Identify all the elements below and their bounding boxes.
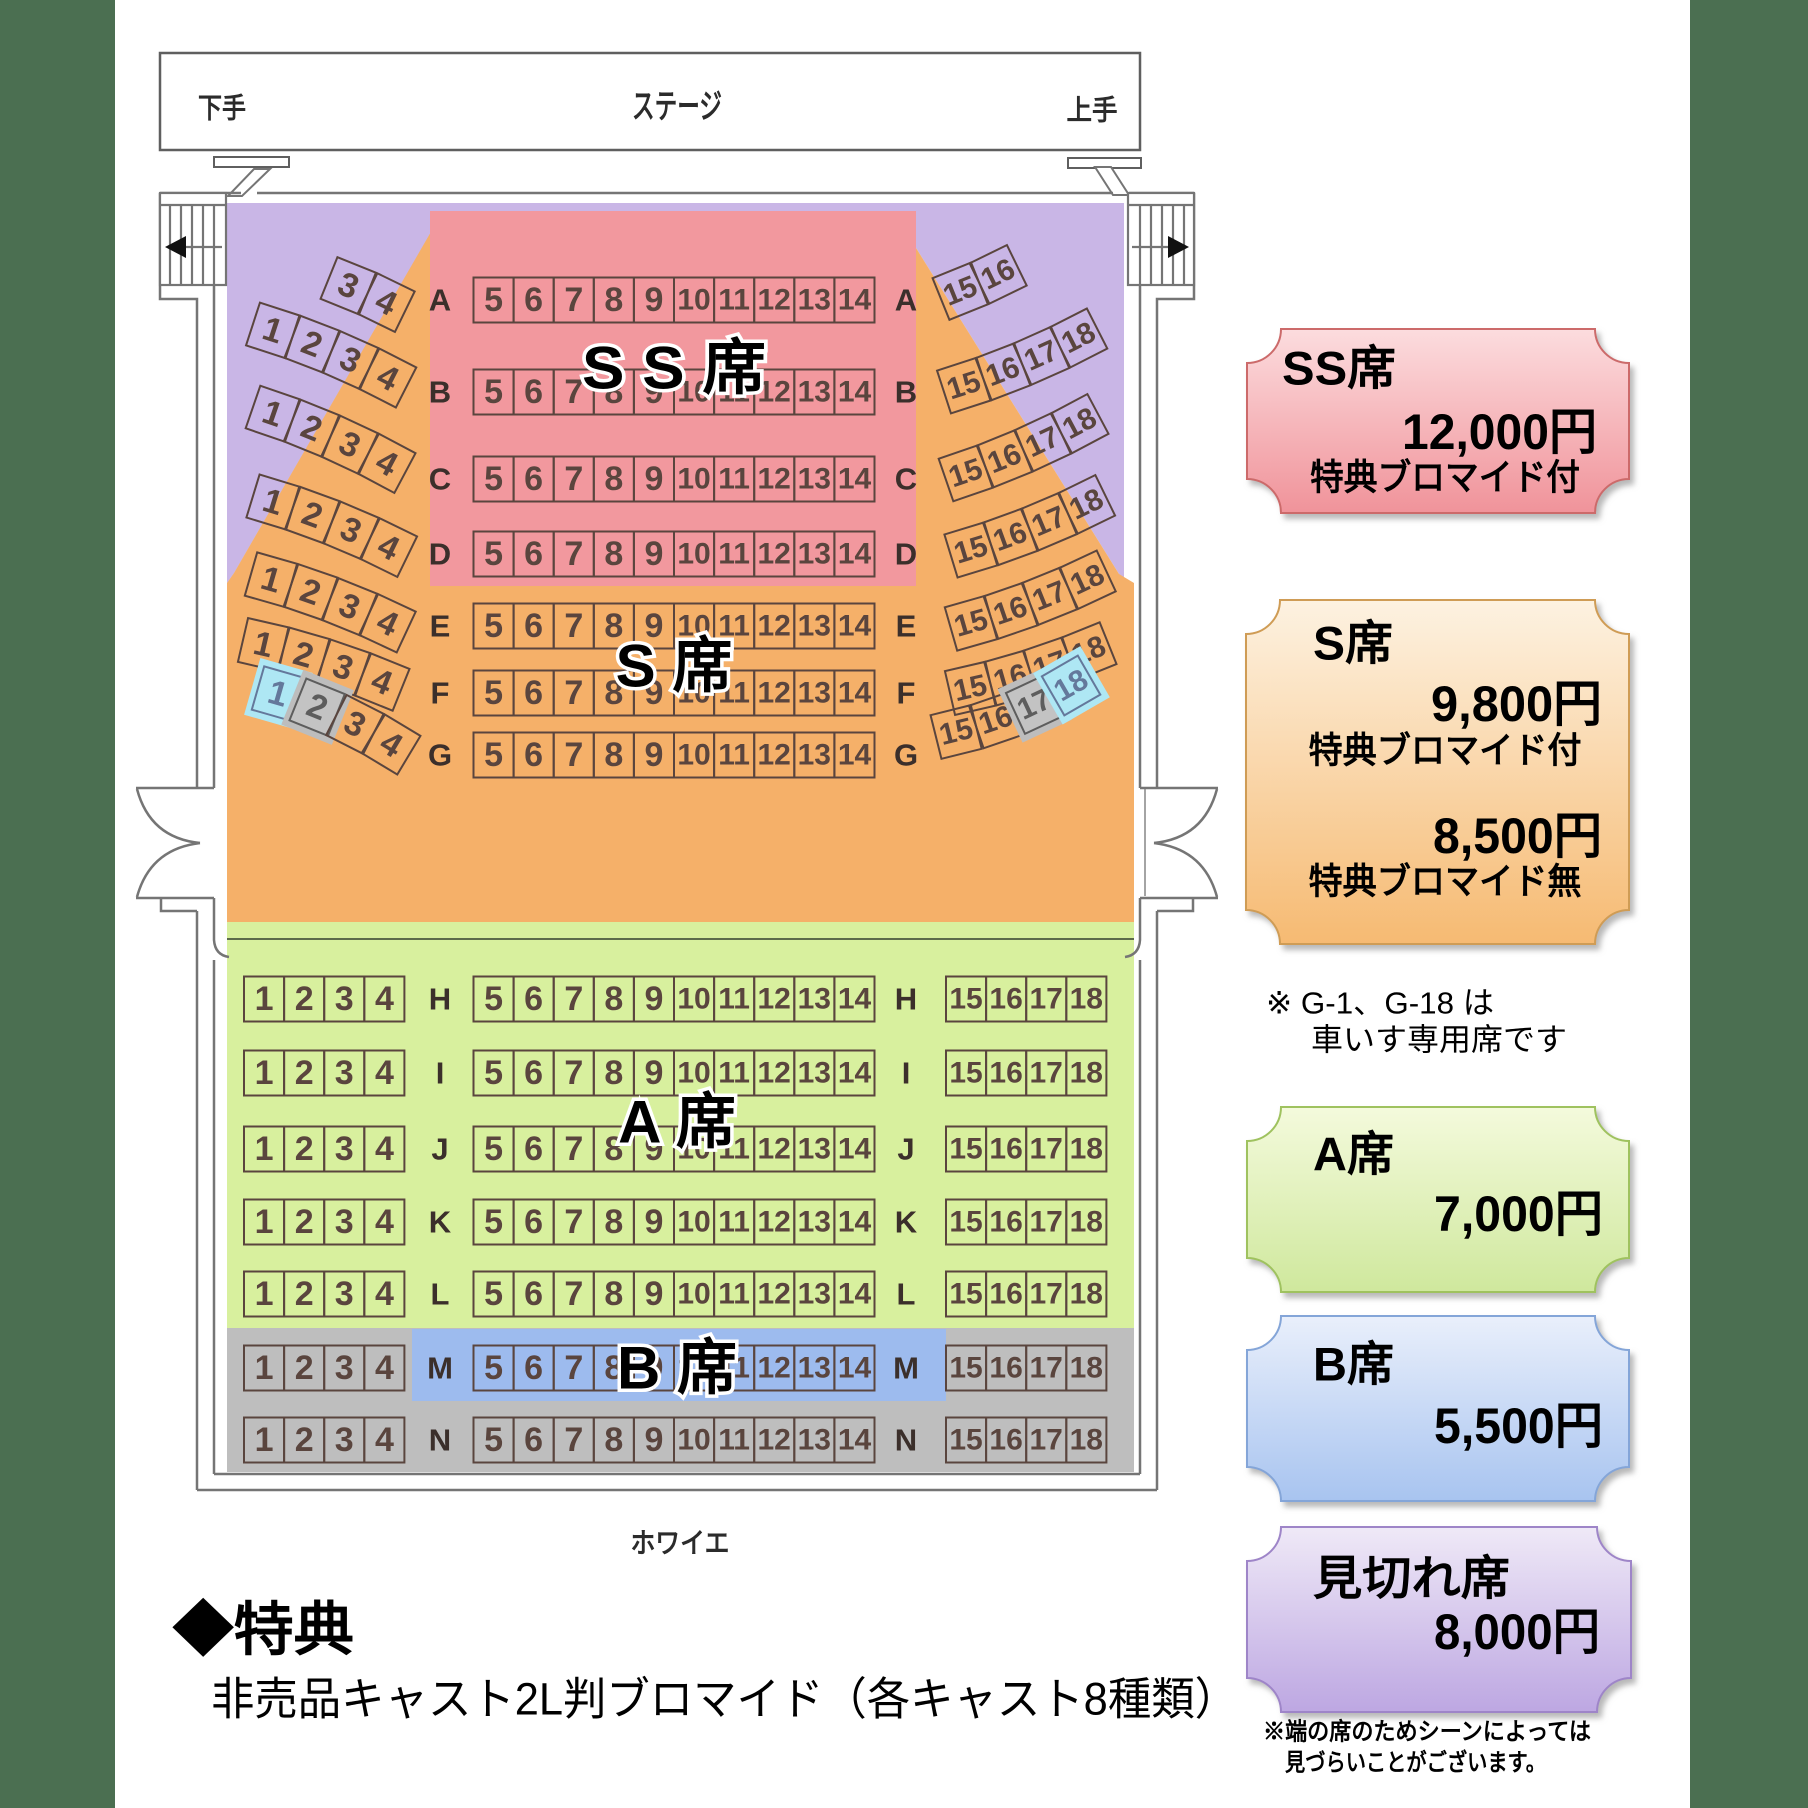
svg-text:M: M (427, 1351, 453, 1386)
svg-text:7: 7 (564, 980, 583, 1018)
svg-text:13: 13 (798, 538, 831, 571)
svg-text:1: 1 (255, 1130, 274, 1168)
svg-text:9: 9 (644, 1275, 663, 1313)
svg-text:10: 10 (677, 538, 710, 571)
svg-text:B: B (895, 375, 917, 410)
svg-text:F: F (897, 676, 916, 711)
svg-text:11: 11 (718, 983, 750, 1016)
svg-text:18: 18 (1070, 1424, 1103, 1457)
svg-text:7: 7 (564, 607, 583, 645)
svg-text:14: 14 (838, 1278, 872, 1311)
svg-text:3: 3 (335, 1203, 354, 1241)
svg-text:5,500円: 5,500円 (1434, 1398, 1603, 1454)
svg-text:3: 3 (335, 1054, 354, 1092)
svg-text:5: 5 (484, 674, 503, 712)
svg-text:8: 8 (604, 281, 623, 319)
svg-text:7: 7 (564, 1349, 583, 1387)
svg-text:9: 9 (644, 535, 663, 573)
svg-text:11: 11 (718, 1057, 750, 1090)
svg-text:8: 8 (604, 1203, 623, 1241)
svg-text:15: 15 (949, 1352, 982, 1385)
svg-text:15: 15 (949, 1206, 982, 1239)
svg-text:13: 13 (798, 677, 831, 710)
svg-text:6: 6 (524, 460, 543, 498)
svg-text:12: 12 (758, 1352, 791, 1385)
svg-text:1: 1 (255, 1349, 274, 1387)
svg-text:8: 8 (604, 1275, 623, 1313)
svg-text:11: 11 (718, 538, 750, 571)
svg-text:S S 席: S S 席 (582, 335, 766, 402)
svg-text:12: 12 (758, 1133, 791, 1166)
svg-text:6: 6 (524, 607, 543, 645)
svg-text:18: 18 (1070, 1206, 1103, 1239)
svg-text:B 席: B 席 (617, 1335, 737, 1402)
svg-text:6: 6 (524, 1349, 543, 1387)
svg-text:1: 1 (255, 980, 274, 1018)
svg-text:10: 10 (677, 463, 710, 496)
svg-text:非売品キャスト2L判ブロマイド（各キャスト8種類）: 非売品キャスト2L判ブロマイド（各キャスト8種類） (211, 1674, 1238, 1725)
svg-text:8: 8 (604, 460, 623, 498)
svg-text:16: 16 (989, 1424, 1022, 1457)
svg-text:8,500円: 8,500円 (1433, 808, 1602, 864)
svg-text:6: 6 (524, 674, 543, 712)
svg-text:見切れ席: 見切れ席 (1313, 1552, 1510, 1605)
svg-text:17: 17 (1030, 983, 1063, 1016)
svg-text:6: 6 (524, 281, 543, 319)
svg-text:12: 12 (758, 463, 791, 496)
svg-text:5: 5 (484, 535, 503, 573)
svg-text:14: 14 (838, 1352, 872, 1385)
svg-text:9: 9 (644, 281, 663, 319)
svg-text:9: 9 (644, 1421, 663, 1459)
svg-text:14: 14 (838, 983, 872, 1016)
svg-text:9: 9 (644, 980, 663, 1018)
svg-text:下手: 下手 (198, 93, 246, 124)
svg-text:7: 7 (564, 736, 583, 774)
svg-text:16: 16 (989, 1206, 1022, 1239)
svg-text:14: 14 (838, 284, 872, 317)
svg-text:14: 14 (838, 1057, 872, 1090)
svg-text:14: 14 (838, 739, 872, 772)
svg-text:H: H (429, 982, 451, 1017)
svg-text:2: 2 (295, 980, 314, 1018)
svg-text:1: 1 (255, 1203, 274, 1241)
svg-text:16: 16 (989, 1057, 1022, 1090)
svg-text:11: 11 (718, 1206, 750, 1239)
svg-text:K: K (429, 1205, 452, 1240)
svg-text:8,000円: 8,000円 (1434, 1604, 1600, 1660)
svg-text:5: 5 (484, 1130, 503, 1168)
svg-text:※ G-1、G-18 は: ※ G-1、G-18 は (1266, 986, 1494, 1021)
svg-text:14: 14 (838, 376, 872, 409)
svg-text:5: 5 (484, 1054, 503, 1092)
svg-text:12: 12 (758, 538, 791, 571)
svg-text:13: 13 (798, 610, 831, 643)
svg-text:14: 14 (838, 1206, 872, 1239)
svg-text:S 席: S 席 (616, 633, 733, 700)
svg-text:F: F (431, 676, 450, 711)
svg-text:4: 4 (375, 1421, 394, 1459)
svg-text:16: 16 (989, 1133, 1022, 1166)
svg-text:11: 11 (718, 739, 750, 772)
svg-text:12: 12 (758, 677, 791, 710)
svg-text:7: 7 (564, 1203, 583, 1241)
svg-text:7: 7 (564, 1421, 583, 1459)
svg-text:N: N (895, 1423, 917, 1458)
svg-text:H: H (895, 982, 917, 1017)
svg-text:10: 10 (677, 983, 710, 1016)
svg-text:9: 9 (644, 1054, 663, 1092)
svg-text:7: 7 (564, 1130, 583, 1168)
svg-text:17: 17 (1030, 1352, 1063, 1385)
svg-text:5: 5 (484, 460, 503, 498)
svg-text:4: 4 (375, 1349, 394, 1387)
svg-text:8: 8 (604, 736, 623, 774)
svg-text:13: 13 (798, 463, 831, 496)
svg-text:17: 17 (1030, 1057, 1063, 1090)
svg-text:5: 5 (484, 607, 503, 645)
svg-text:18: 18 (1070, 983, 1103, 1016)
svg-text:A 席: A 席 (618, 1089, 736, 1156)
svg-text:5: 5 (484, 736, 503, 774)
svg-text:9: 9 (644, 460, 663, 498)
svg-text:13: 13 (798, 983, 831, 1016)
svg-text:6: 6 (524, 1130, 543, 1168)
svg-text:2: 2 (295, 1130, 314, 1168)
svg-text:12: 12 (758, 1057, 791, 1090)
svg-text:18: 18 (1070, 1133, 1103, 1166)
svg-text:ステージ: ステージ (632, 88, 722, 126)
svg-text:※端の席のためシーンによっては: ※端の席のためシーンによっては (1263, 1718, 1591, 1746)
svg-text:7: 7 (564, 674, 583, 712)
svg-text:5: 5 (484, 1275, 503, 1313)
svg-text:4: 4 (375, 980, 394, 1018)
svg-text:5: 5 (484, 1349, 503, 1387)
svg-text:1: 1 (255, 1421, 274, 1459)
svg-text:11: 11 (718, 463, 750, 496)
svg-text:3: 3 (335, 1130, 354, 1168)
svg-text:◆特典: ◆特典 (172, 1598, 354, 1663)
svg-text:7: 7 (564, 1054, 583, 1092)
svg-text:1: 1 (255, 1275, 274, 1313)
svg-text:G: G (428, 738, 452, 773)
svg-text:A席: A席 (1313, 1128, 1394, 1181)
svg-text:B席: B席 (1313, 1338, 1394, 1391)
svg-text:2: 2 (295, 1054, 314, 1092)
svg-text:特典ブロマイド付: 特典ブロマイド付 (1309, 730, 1582, 771)
svg-text:18: 18 (1070, 1057, 1103, 1090)
svg-text:17: 17 (1030, 1278, 1063, 1311)
svg-text:15: 15 (949, 1278, 982, 1311)
svg-text:6: 6 (524, 1054, 543, 1092)
svg-text:14: 14 (838, 1424, 872, 1457)
svg-text:12: 12 (758, 1424, 791, 1457)
svg-text:13: 13 (798, 739, 831, 772)
svg-text:10: 10 (677, 1057, 710, 1090)
svg-text:SS席: SS席 (1282, 342, 1396, 395)
svg-text:7,000円: 7,000円 (1434, 1186, 1603, 1242)
svg-text:6: 6 (524, 373, 543, 411)
svg-text:L: L (431, 1277, 450, 1312)
svg-text:18: 18 (1070, 1352, 1103, 1385)
svg-text:K: K (895, 1205, 918, 1240)
svg-text:5: 5 (484, 1421, 503, 1459)
svg-text:9,800円: 9,800円 (1431, 676, 1602, 732)
svg-text:5: 5 (484, 373, 503, 411)
svg-text:11: 11 (718, 1278, 750, 1311)
svg-text:4: 4 (375, 1275, 394, 1313)
svg-text:7: 7 (564, 460, 583, 498)
svg-text:13: 13 (798, 1057, 831, 1090)
svg-text:10: 10 (677, 739, 710, 772)
svg-text:E: E (430, 609, 451, 644)
svg-text:14: 14 (838, 610, 872, 643)
svg-text:A: A (895, 283, 917, 318)
svg-text:6: 6 (524, 980, 543, 1018)
svg-text:3: 3 (335, 980, 354, 1018)
svg-text:D: D (429, 537, 451, 572)
svg-text:17: 17 (1030, 1424, 1063, 1457)
svg-text:8: 8 (604, 535, 623, 573)
svg-text:G: G (894, 738, 918, 773)
svg-text:2: 2 (295, 1421, 314, 1459)
svg-text:14: 14 (838, 1133, 872, 1166)
svg-text:13: 13 (798, 1133, 831, 1166)
svg-text:8: 8 (604, 980, 623, 1018)
svg-text:特典ブロマイド付: 特典ブロマイド付 (1310, 457, 1580, 498)
svg-text:16: 16 (989, 1352, 1022, 1385)
svg-text:J: J (897, 1132, 914, 1167)
svg-text:M: M (893, 1351, 919, 1386)
svg-text:6: 6 (524, 535, 543, 573)
svg-text:D: D (895, 537, 917, 572)
svg-text:4: 4 (375, 1203, 394, 1241)
svg-text:17: 17 (1030, 1206, 1063, 1239)
svg-text:6: 6 (524, 1275, 543, 1313)
svg-text:14: 14 (838, 463, 872, 496)
svg-text:上手: 上手 (1067, 95, 1118, 126)
svg-text:B: B (429, 375, 451, 410)
svg-text:10: 10 (677, 1278, 710, 1311)
svg-text:15: 15 (949, 1133, 982, 1166)
svg-text:C: C (429, 462, 451, 497)
svg-text:6: 6 (524, 1421, 543, 1459)
svg-text:E: E (896, 609, 917, 644)
svg-text:J: J (431, 1132, 448, 1167)
svg-text:8: 8 (604, 1054, 623, 1092)
svg-text:12,000円: 12,000円 (1402, 404, 1597, 460)
svg-text:I: I (902, 1056, 911, 1091)
svg-text:7: 7 (564, 535, 583, 573)
svg-text:10: 10 (677, 284, 710, 317)
svg-text:15: 15 (949, 1057, 982, 1090)
svg-text:ホワイエ: ホワイエ (631, 1528, 730, 1559)
svg-text:7: 7 (564, 1275, 583, 1313)
svg-text:4: 4 (375, 1130, 394, 1168)
svg-text:2: 2 (295, 1203, 314, 1241)
svg-text:17: 17 (1030, 1133, 1063, 1166)
svg-text:13: 13 (798, 1278, 831, 1311)
svg-text:8: 8 (604, 1421, 623, 1459)
svg-text:I: I (436, 1056, 445, 1091)
svg-text:特典ブロマイド無: 特典ブロマイド無 (1309, 861, 1582, 902)
svg-text:5: 5 (484, 980, 503, 1018)
svg-text:7: 7 (564, 373, 583, 411)
svg-text:1: 1 (255, 1054, 274, 1092)
svg-text:6: 6 (524, 736, 543, 774)
svg-text:L: L (897, 1277, 916, 1312)
svg-text:S席: S席 (1313, 617, 1393, 670)
svg-text:A: A (429, 283, 451, 318)
svg-text:9: 9 (644, 736, 663, 774)
svg-text:13: 13 (798, 1352, 831, 1385)
svg-text:14: 14 (838, 538, 872, 571)
svg-text:C: C (895, 462, 917, 497)
svg-text:13: 13 (798, 376, 831, 409)
svg-text:13: 13 (798, 1424, 831, 1457)
svg-text:7: 7 (564, 281, 583, 319)
svg-text:11: 11 (718, 1424, 750, 1457)
svg-text:10: 10 (677, 1206, 710, 1239)
svg-text:6: 6 (524, 1203, 543, 1241)
svg-text:11: 11 (718, 284, 750, 317)
svg-text:N: N (429, 1423, 451, 1458)
svg-text:2: 2 (295, 1275, 314, 1313)
svg-text:16: 16 (989, 983, 1022, 1016)
svg-text:5: 5 (484, 1203, 503, 1241)
svg-text:2: 2 (295, 1349, 314, 1387)
svg-text:12: 12 (758, 1206, 791, 1239)
svg-text:13: 13 (798, 1206, 831, 1239)
svg-text:13: 13 (798, 284, 831, 317)
svg-text:12: 12 (758, 610, 791, 643)
svg-text:9: 9 (644, 1203, 663, 1241)
svg-text:3: 3 (335, 1421, 354, 1459)
svg-text:3: 3 (335, 1275, 354, 1313)
svg-text:10: 10 (677, 1424, 710, 1457)
svg-text:15: 15 (949, 983, 982, 1016)
svg-text:12: 12 (758, 983, 791, 1016)
svg-text:見づらいことがございます。: 見づらいことがございます。 (1285, 1749, 1546, 1777)
svg-text:16: 16 (989, 1278, 1022, 1311)
svg-text:12: 12 (758, 739, 791, 772)
svg-text:12: 12 (758, 284, 791, 317)
svg-text:4: 4 (375, 1054, 394, 1092)
svg-text:車いす専用席です: 車いす専用席です (1311, 1023, 1567, 1058)
svg-text:3: 3 (335, 1349, 354, 1387)
svg-text:5: 5 (484, 281, 503, 319)
svg-text:18: 18 (1070, 1278, 1103, 1311)
svg-text:15: 15 (949, 1424, 982, 1457)
svg-text:12: 12 (758, 1278, 791, 1311)
svg-text:14: 14 (838, 677, 872, 710)
